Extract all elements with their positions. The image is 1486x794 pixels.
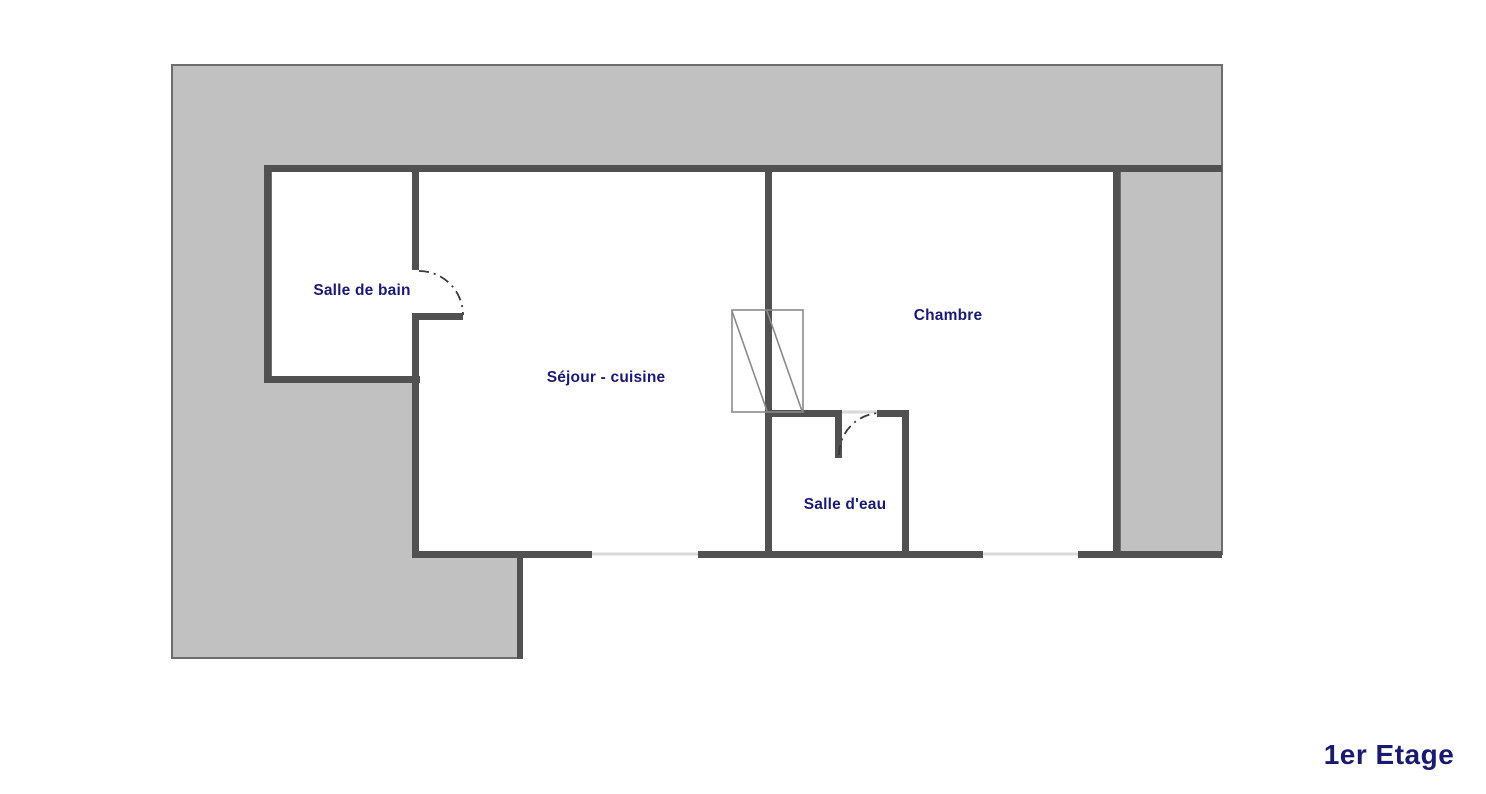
bottom-wall-right xyxy=(1078,551,1222,558)
salle-d-eau-right-wall xyxy=(902,410,909,558)
floor-plan-page: Salle de bain Séjour - cuisine Chambre S… xyxy=(0,0,1486,794)
stairs-diagonal-2 xyxy=(767,311,802,411)
bathroom-right-wall-upper xyxy=(412,165,419,270)
floor-title: 1er Etage xyxy=(1324,739,1455,770)
chambre-right-wall xyxy=(1113,165,1120,558)
sejour-chambre-divider-wall xyxy=(765,165,772,558)
room-label-salle-de-bain: Salle de bain xyxy=(313,282,410,299)
bottom-wall-middle xyxy=(698,551,983,558)
floor-plan-drawing: Salle de bain Séjour - cuisine Chambre S… xyxy=(0,0,1486,794)
room-label-chambre: Chambre xyxy=(914,307,983,324)
bathroom-left-wall xyxy=(264,165,271,383)
stairs-diagonal-1 xyxy=(732,311,767,411)
bottom-wall-left xyxy=(412,551,592,558)
bathroom-door-stub-wall xyxy=(412,313,463,320)
bathroom-door-arc xyxy=(419,271,463,315)
salle-d-eau-door-arc xyxy=(839,413,881,455)
top-wall xyxy=(264,165,1222,172)
sejour-left-wall xyxy=(412,313,419,558)
building-mass xyxy=(172,65,1222,658)
room-label-sejour-cuisine: Séjour - cuisine xyxy=(547,369,666,386)
bathroom-bottom-wall xyxy=(264,376,420,383)
mass-step-edge xyxy=(517,552,523,659)
room-label-salle-d-eau: Salle d'eau xyxy=(804,496,887,513)
